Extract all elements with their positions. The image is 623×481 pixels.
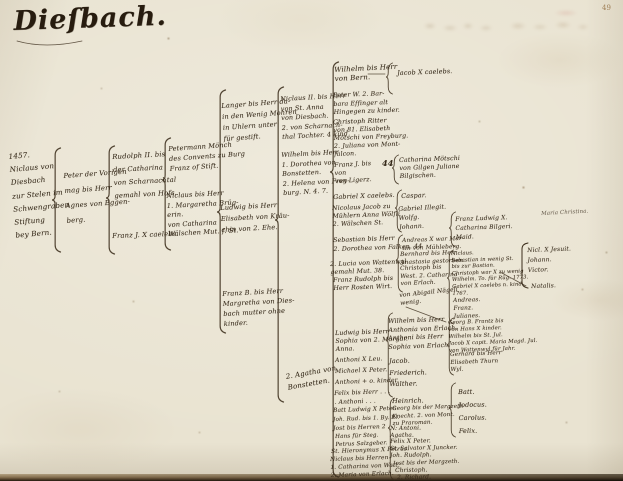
tree-entry-g7d: Franz J. bis von von Ligerz.: [334, 160, 372, 186]
tree-entry-g9c: Andreas. Franz. Julianes.: [453, 296, 481, 321]
tree-entry-g7l: Michael X Peter.: [335, 366, 387, 376]
tree-entry-g8i: Jacob. Friederich. Walther.: [389, 355, 427, 390]
tree-entry-g10b: Natalis.: [531, 282, 556, 291]
page-title: Dieſbach.: [13, 1, 167, 37]
tree-entry-g8f: von Abigail Nägeli wenig.: [399, 286, 459, 308]
tree-entry-g5note: 2. Agatha von Bonstetten.: [285, 363, 339, 394]
tree-entry-g7e: Gabriel X caelebs.: [333, 191, 395, 201]
tree-entry-g7n: Felix bis Herr . . . . Anthoni . . .: [334, 387, 391, 407]
tree-entry-g8a: Caspar.: [401, 191, 427, 200]
tree-entry-g8r: 2. Richard.: [397, 474, 431, 481]
tree-entry-g7i: Franz Rudolph bis Herr Rosten Wirt.: [333, 275, 394, 293]
tree-entry-g8k: Georg bis der Margzeth Knecht. 2. von Mo…: [392, 404, 464, 429]
tree-entry-g7f: Nicolaus Jacob zu Mühlern Anna Wölfli 2.…: [332, 203, 400, 229]
tree-entry-g7a: Wilhelm bis Herr von Bern.: [334, 63, 398, 84]
tree-entry-g7b: Peter W. 2. Bar- bara Effinger alt Hinge…: [333, 90, 400, 118]
folio-number: 49: [602, 4, 611, 12]
tree-entry-g10c: Maria Christina.: [541, 209, 589, 218]
tree-entry-g7c: Christoph Ritter von 81. Elisabeth Mötsc…: [333, 116, 409, 159]
tree-entry-g5b: Ludwig bis Herr Elisabeth von Kräu- chin…: [220, 199, 290, 236]
tree-entry-g7k: Anthoni X Leu.: [335, 355, 383, 365]
tree-entry-g10a: Nicl. X Jesuit. Johann. Victor.: [527, 244, 572, 276]
tree-entry-g9e: Gerhard bis Herr Elisabeth Thurn Wyl.: [450, 350, 502, 374]
tree-entry-g7a_child: Jacob X caelebs.: [397, 67, 453, 77]
tree-entry-g8o: Joh. Rudolph.: [390, 452, 432, 460]
tree-entries: 1457. Niclaus von Diesbach zur Stelen im…: [0, 0, 623, 481]
manuscript-page: 1457. Niclaus von Diesbach zur Stelen im…: [0, 0, 623, 481]
tree-entry-g8b: Gabriel Illegit. Wolfg. Johann.: [398, 202, 447, 231]
tree-entry-g9f: Batt. Jodocus. Carolus. Felix.: [458, 386, 487, 438]
tree-entry-g7d_44: 44: [382, 159, 393, 167]
tree-entry-g8e: Christoph bis West. 2. Catharina von Erl…: [400, 264, 458, 288]
tree-entry-g5c: Franz B. bis Herr Margretha von Dies- ba…: [222, 285, 296, 329]
tree-entry-g9a: Franz Ludwig X. Catharina Bilgeri. Maid.: [455, 213, 513, 242]
tree-entry-g7h: 2. Lucia von Wattenwyl gemahl Mut. 38.: [330, 258, 407, 277]
tree-entry-g1: 1457. Niclaus von Diesbach zur Stelen im…: [8, 145, 72, 242]
tree-entry-g9b: Niclaus. Sebastian in wenig St. bis zur …: [451, 248, 529, 297]
tree-entry-g8h: Anthoni bis Herr Sophia von Erlach.: [388, 332, 451, 352]
tree-entry-g7d_child: Catharina Mötschi von Gilgen Juliane Bil…: [399, 155, 461, 181]
tree-entry-g8j: Heinrich.: [392, 396, 424, 405]
tree-entry-g9d: Georg B. Frantz bis von Hans X kinder. W…: [448, 317, 538, 355]
